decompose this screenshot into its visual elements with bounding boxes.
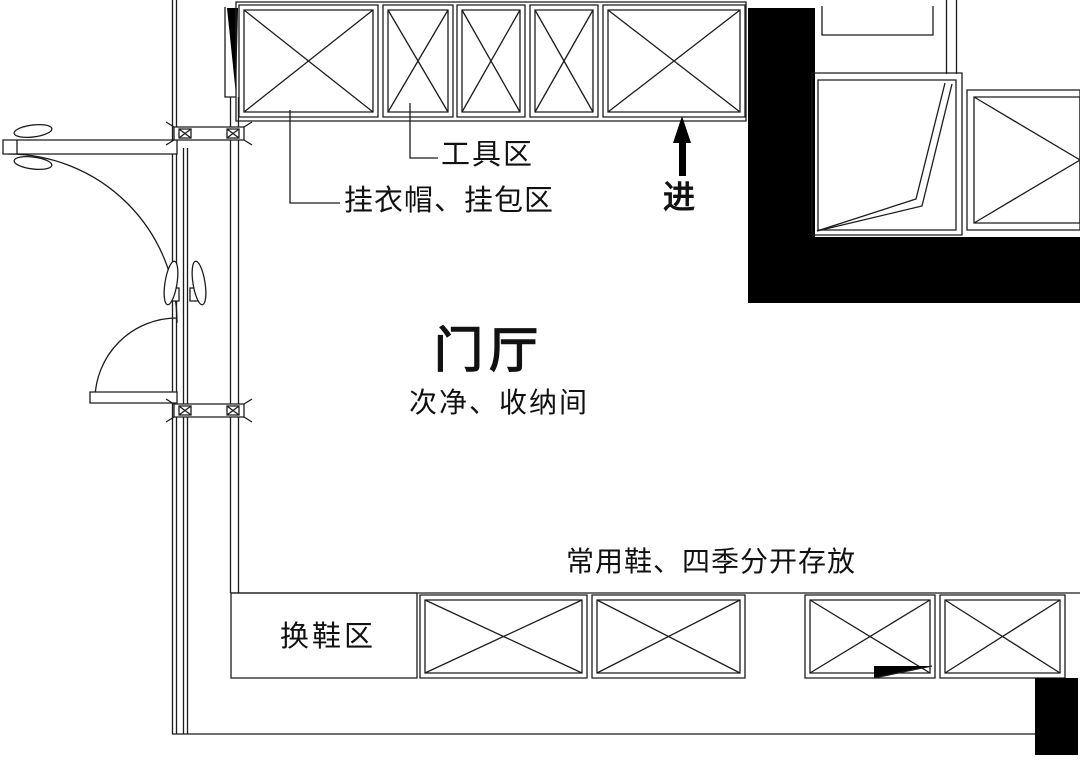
door-swing-arc-large	[8, 154, 177, 323]
label-tool-area: 工具区	[441, 141, 534, 170]
label-entry: 进	[663, 181, 695, 213]
cabinet-crossed-box	[967, 90, 1080, 230]
cabinet-crossed-box	[530, 5, 598, 117]
door-handle-icon	[13, 123, 52, 140]
door-handle-icon	[13, 155, 52, 172]
cabinet-crossed-box	[592, 595, 745, 678]
closet-bifold-door	[812, 73, 962, 235]
cabinet-crossed-box	[383, 5, 453, 117]
room-title: 门厅	[434, 326, 544, 375]
entry-door	[3, 122, 252, 422]
cabinet-crossed-box	[239, 5, 378, 117]
cabinet-crossed-box	[603, 5, 745, 117]
adjacent-room	[812, 0, 1080, 235]
door-leaf-open	[3, 140, 177, 154]
cabinet-crossed-box	[940, 595, 1065, 678]
door-leaf-small	[90, 392, 177, 403]
counter-outline	[822, 6, 933, 35]
room-subtitle: 次净、收纳间	[409, 390, 589, 418]
label-shoe-change-area: 换鞋区	[280, 623, 376, 652]
left-wall	[173, 0, 188, 734]
label-coat-bag-area: 挂衣帽、挂包区	[344, 187, 554, 216]
black-wall	[748, 8, 1080, 303]
label-shoe-storage-note: 常用鞋、四季分开存放	[566, 549, 856, 577]
floor-plan-drawing	[0, 0, 1080, 760]
door-swing-arc-small	[95, 318, 177, 400]
top-cabinet-row	[236, 2, 746, 121]
cabinet-crossed-box	[805, 595, 935, 678]
cabinet-crossed-box	[420, 595, 587, 678]
door-lever-handles	[162, 260, 209, 305]
floor-plan: 工具区 挂衣帽、挂包区 进 门厅 次净、收纳间 常用鞋、四季分开存放 换鞋区	[0, 0, 1080, 760]
entry-arrow-icon	[673, 116, 691, 176]
black-wall-column	[1035, 678, 1078, 755]
cabinet-crossed-box	[457, 5, 525, 117]
